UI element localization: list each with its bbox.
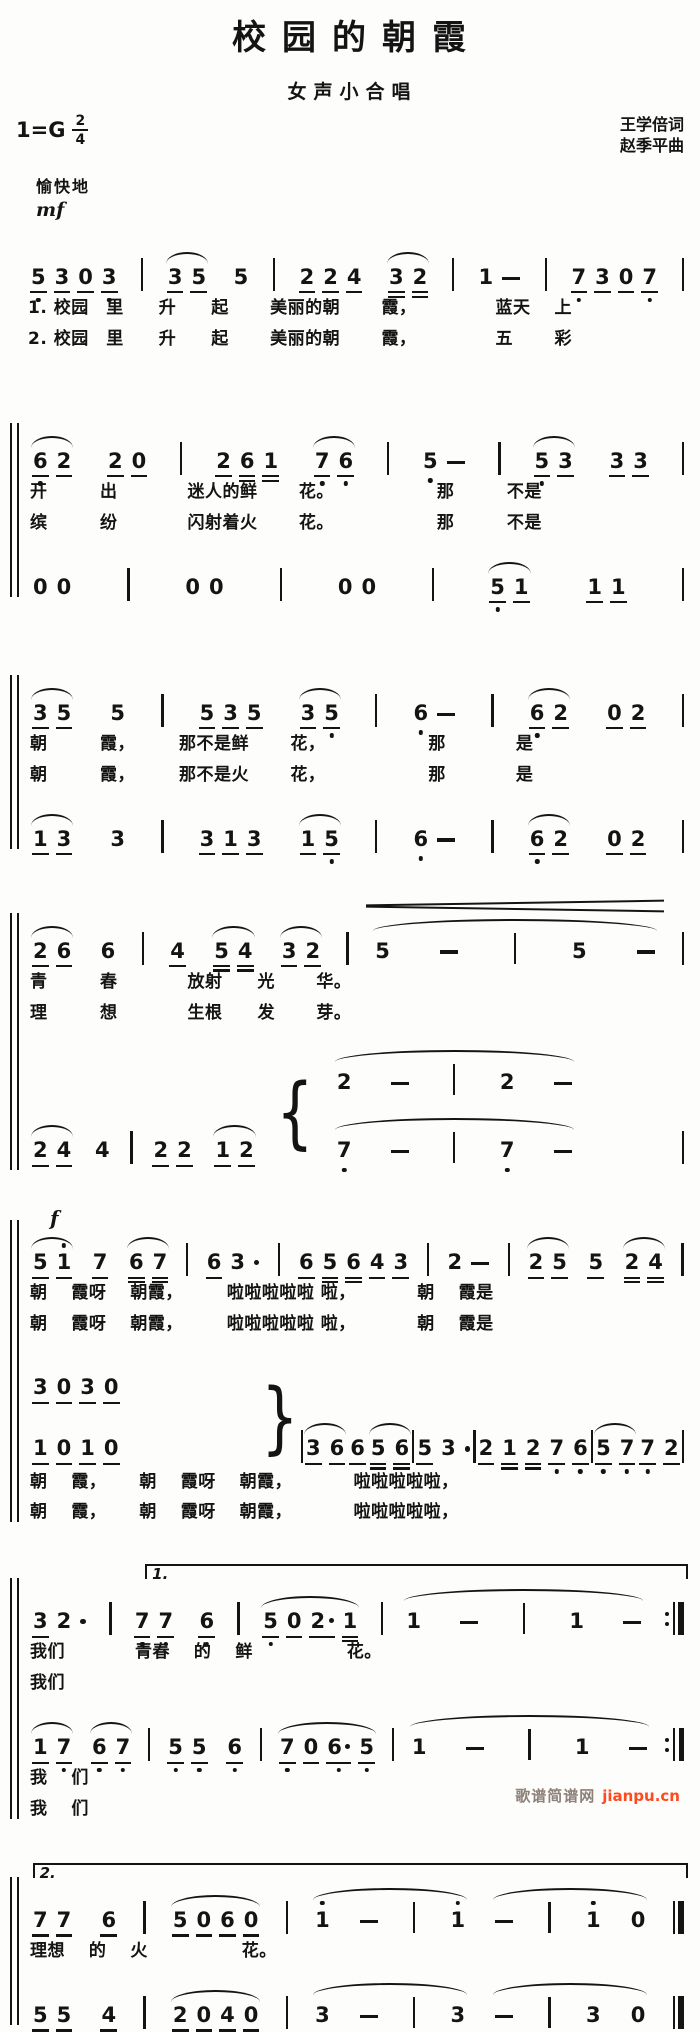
dash-note bbox=[495, 2015, 513, 2018]
system-4: 2664543255青 春 放射 光 华。理 想 生根 发 芽。2442212{… bbox=[10, 899, 688, 1173]
lyrics-line: 开 出 迷人的鲜 花。 那 不是 bbox=[30, 481, 688, 504]
note: 5 bbox=[552, 1251, 567, 1274]
note: 3 bbox=[168, 266, 183, 289]
note-group: 6 bbox=[224, 1736, 245, 1759]
note: 1 bbox=[33, 1437, 48, 1460]
slur-group: 35 bbox=[30, 702, 74, 725]
system-bracket bbox=[10, 1877, 19, 2025]
slur-group: 55 bbox=[372, 933, 658, 963]
barline bbox=[375, 820, 377, 853]
sheet-music-page: 校园的朝霞 女声小合唱 1=G 2 4 王学倍词 赵季平曲 愉快地 mf 530… bbox=[0, 0, 700, 1820]
note: 2 bbox=[305, 940, 320, 963]
note: 6 bbox=[327, 1736, 350, 1759]
note: 3 bbox=[33, 1610, 48, 1633]
note-group: 55 bbox=[30, 2004, 74, 2027]
note-group: 7 bbox=[90, 1251, 111, 1274]
footer-watermark: 歌谱简谱网 jianpu.cn bbox=[515, 1785, 680, 1806]
note: 5 bbox=[214, 940, 229, 963]
note: 2 bbox=[57, 1610, 72, 1633]
note: 7 bbox=[620, 1437, 635, 1460]
note: 3 bbox=[306, 1437, 321, 1460]
slur-group: 36 bbox=[303, 1437, 347, 1460]
note: 0 bbox=[185, 576, 200, 599]
note: 7 bbox=[642, 266, 657, 289]
note: 7 bbox=[500, 1139, 515, 1162]
note-group: 77 bbox=[132, 1610, 176, 1633]
slur-group: 51 bbox=[30, 1251, 74, 1274]
barline bbox=[127, 568, 129, 601]
note-group: 2 bbox=[445, 1251, 493, 1274]
note: 6 bbox=[346, 1251, 361, 1274]
note: 1 bbox=[502, 1437, 517, 1460]
dash-note bbox=[360, 2015, 378, 2018]
note: 7 bbox=[57, 1736, 72, 1759]
slur-group: 32 bbox=[386, 266, 430, 289]
note: 6 bbox=[227, 1736, 242, 1759]
note: 2 bbox=[57, 450, 72, 473]
dynamic-marking-mf: mf bbox=[36, 199, 688, 221]
barline bbox=[161, 820, 163, 853]
slur-group: 62 bbox=[527, 828, 571, 851]
lyrics-line: 缤 纷 闪射着火 花。 那 不是 bbox=[30, 512, 688, 535]
note: 3 bbox=[610, 450, 625, 473]
note-group: 02 bbox=[604, 702, 648, 725]
note: 2 bbox=[310, 1610, 333, 1633]
system-2: 62202617655333开 出 迷人的鲜 花。 那 不是缤 纷 闪射着火 花… bbox=[10, 409, 688, 599]
note-group: 11 bbox=[584, 576, 628, 599]
notes-row: 62202617655333 bbox=[26, 439, 688, 473]
barline bbox=[514, 933, 516, 964]
note: 0 bbox=[607, 702, 622, 725]
note: 5 bbox=[323, 1251, 338, 1274]
note: 0 bbox=[57, 1437, 72, 1460]
note-group: 22 bbox=[150, 1139, 194, 1162]
time-denominator: 4 bbox=[75, 131, 85, 147]
note: 0 bbox=[287, 1610, 302, 1633]
note: 3 bbox=[586, 2004, 601, 2027]
note: 7 bbox=[280, 1736, 295, 1759]
slur-group: 7065 bbox=[277, 1736, 377, 1759]
dash-note bbox=[637, 950, 655, 953]
slur-group: 2040 bbox=[170, 2004, 262, 2027]
tempo-block: 愉快地 mf bbox=[36, 173, 688, 221]
note: 1 bbox=[215, 1139, 230, 1162]
note: 4 bbox=[101, 2004, 116, 2027]
system-6: 1.32776502111我们 青春 的 鲜 花。我们1767556706511… bbox=[10, 1564, 688, 1821]
lyrics-line: 朝 霞， 那不是火 花， 那 是 bbox=[30, 764, 688, 787]
note: 0 bbox=[33, 576, 48, 599]
barline bbox=[148, 1728, 150, 1761]
note: 5 bbox=[324, 702, 339, 725]
divisi-line: 22 bbox=[334, 1064, 664, 1094]
slur-group: 76 bbox=[312, 450, 356, 473]
lyrics-line: 我们 bbox=[30, 1672, 688, 1695]
note: 6 bbox=[338, 450, 353, 473]
barline bbox=[548, 1997, 550, 2028]
low-octave-dot bbox=[495, 607, 499, 611]
note: 2 bbox=[216, 450, 231, 473]
note: 5 bbox=[234, 266, 249, 289]
dash-note bbox=[391, 1150, 409, 1153]
barline bbox=[682, 694, 684, 727]
note: 2 bbox=[625, 1251, 640, 1274]
note: 3 bbox=[247, 828, 262, 851]
note: 0 bbox=[338, 576, 353, 599]
note: 0 bbox=[104, 1437, 119, 1460]
note: 5 bbox=[57, 2004, 72, 2027]
note: 5 bbox=[110, 702, 125, 725]
divisi-stack: 30301010 bbox=[30, 1376, 259, 1460]
note: 2 bbox=[33, 1139, 48, 1162]
system-bracket bbox=[10, 1220, 19, 1522]
note-group: 00 bbox=[182, 576, 226, 599]
note-group: 6 bbox=[411, 828, 459, 851]
note: 3 bbox=[633, 450, 648, 473]
barline bbox=[453, 1064, 455, 1095]
note-group: 4 bbox=[167, 940, 188, 963]
note: 3 bbox=[223, 702, 238, 725]
barline bbox=[682, 568, 684, 601]
barline bbox=[682, 820, 684, 853]
slur-group: 51 bbox=[487, 576, 531, 599]
note: 6 bbox=[207, 1251, 222, 1274]
lyrics-line: 朝 霞， 朝 霞呀 朝霞， 啦啦啦啦啦， bbox=[30, 1471, 688, 1494]
slur-group: 77 bbox=[334, 1132, 575, 1162]
score: 530335522432173071. 校园 里 升 起 美丽的朝 霞， 蓝天 … bbox=[10, 225, 688, 2027]
dynamic-marking-f: f bbox=[50, 1206, 688, 1230]
slur-group: 25 bbox=[526, 1251, 570, 1274]
note: 5 bbox=[200, 702, 215, 725]
note: 5 bbox=[324, 828, 339, 851]
note: 5 bbox=[57, 702, 72, 725]
note: 3 bbox=[282, 940, 297, 963]
barline bbox=[498, 442, 500, 475]
note: 2 bbox=[173, 2004, 188, 2027]
note: 6 bbox=[530, 828, 545, 851]
high-octave-dot bbox=[456, 1901, 460, 1905]
note: 2 bbox=[323, 266, 338, 289]
note: 4 bbox=[95, 1139, 110, 1162]
note: 0 bbox=[607, 828, 622, 851]
barline bbox=[143, 1901, 145, 1934]
dash-note bbox=[554, 1082, 572, 1085]
slur-group: 35 bbox=[298, 702, 342, 725]
note: 6 bbox=[414, 828, 429, 851]
slur-group: 53 bbox=[532, 450, 576, 473]
divisi-line: 77 bbox=[334, 1132, 664, 1162]
note-group: 3 bbox=[107, 828, 128, 851]
barline bbox=[161, 694, 163, 727]
notes-row: 1333131566202 bbox=[26, 817, 688, 851]
notes-row: 32776502111 bbox=[26, 1599, 688, 1633]
note-group: 6 bbox=[411, 702, 459, 725]
slur-group: 62 bbox=[527, 702, 571, 725]
note: 3 bbox=[55, 266, 70, 289]
slur-group: 13 bbox=[30, 828, 74, 851]
time-signature: 2 4 bbox=[72, 114, 88, 147]
barline bbox=[346, 932, 348, 965]
note: 7 bbox=[57, 1909, 72, 1932]
augmentation-dot bbox=[80, 1619, 86, 1625]
dash-note bbox=[391, 1082, 409, 1085]
barline bbox=[286, 1901, 288, 1934]
note: 6 bbox=[330, 1437, 345, 1460]
slur-group: 32 bbox=[279, 940, 323, 963]
barline bbox=[286, 1996, 288, 2029]
barline bbox=[130, 1131, 132, 1164]
note-group: 5 bbox=[420, 450, 468, 473]
barline bbox=[508, 1243, 510, 1276]
slur-group: 62 bbox=[30, 450, 74, 473]
song-subtitle: 女声小合唱 bbox=[17, 77, 688, 104]
low-octave-dot bbox=[505, 1168, 509, 1172]
dash-note bbox=[360, 1920, 378, 1923]
slur-group: 67 bbox=[126, 1251, 170, 1274]
barline bbox=[681, 1243, 683, 1276]
barline bbox=[381, 1602, 383, 1635]
note: 1 bbox=[587, 576, 602, 599]
slur-group: 15 bbox=[298, 828, 342, 851]
note: 1 bbox=[57, 1251, 72, 1274]
note: 1 bbox=[575, 1736, 590, 1759]
barline bbox=[452, 258, 454, 291]
note: 3 bbox=[441, 1437, 456, 1460]
barline bbox=[682, 442, 684, 475]
note-group: 00 bbox=[335, 576, 379, 599]
lyrics-line: 朝 霞， 那不是鲜 花， 那 是 bbox=[30, 733, 688, 756]
note-group: 00 bbox=[30, 576, 74, 599]
barline bbox=[392, 1728, 394, 1761]
high-octave-dot bbox=[320, 1901, 324, 1905]
note: 6 bbox=[350, 1437, 365, 1460]
note-group: 65643 bbox=[296, 1251, 411, 1274]
note: 2 bbox=[108, 450, 123, 473]
notes-row: 1767556706511 bbox=[26, 1725, 688, 1759]
note: 3 bbox=[110, 828, 125, 851]
note: 6 bbox=[33, 450, 48, 473]
note: 5 bbox=[33, 2004, 48, 2027]
low-octave-dot bbox=[535, 859, 539, 863]
barline bbox=[491, 694, 493, 727]
barline bbox=[682, 932, 684, 965]
note: 7 bbox=[153, 1251, 168, 1274]
note: 3 bbox=[595, 266, 610, 289]
note-group: 6 bbox=[196, 1610, 217, 1633]
slur-group: 56 bbox=[368, 1437, 412, 1460]
note: 3 bbox=[33, 702, 48, 725]
note: 1 bbox=[80, 1437, 95, 1460]
system-3: 3555353566202朝 霞， 那不是鲜 花， 那 是朝 霞， 那不是火 花… bbox=[10, 661, 688, 851]
augmentation-dot bbox=[465, 1446, 471, 1452]
note: 1 bbox=[569, 1610, 584, 1633]
barline bbox=[280, 568, 282, 601]
note: 4 bbox=[57, 1139, 72, 1162]
lyrics-line: 理 想 生根 发 芽。 bbox=[30, 1002, 688, 1025]
note: 2 bbox=[413, 266, 428, 289]
note-group: 6 bbox=[98, 940, 119, 963]
note: 7 bbox=[93, 1251, 108, 1274]
note: 6 bbox=[101, 1909, 116, 1932]
barline bbox=[237, 1602, 239, 1635]
barline bbox=[375, 694, 377, 727]
note: 5 bbox=[33, 1251, 48, 1274]
note-group: 63 bbox=[204, 1251, 263, 1274]
volta-bracket: 2. bbox=[33, 1863, 688, 1878]
note: 6 bbox=[414, 702, 429, 725]
barline bbox=[387, 442, 389, 475]
dash-note bbox=[460, 1621, 478, 1624]
note: 5 bbox=[192, 1736, 207, 1759]
note-group: 4 bbox=[92, 1139, 113, 1162]
meta-row: 1=G 2 4 王学倍词 赵季平曲 bbox=[16, 114, 684, 157]
note-group: 5 bbox=[585, 1251, 606, 1274]
note: 5 bbox=[263, 1610, 278, 1633]
final-barline bbox=[673, 1996, 684, 2029]
barline bbox=[278, 1243, 280, 1276]
note: 2 bbox=[177, 1139, 192, 1162]
note: 7 bbox=[337, 1139, 352, 1162]
note-group: 1010 bbox=[30, 1437, 122, 1460]
high-octave-dot bbox=[62, 1243, 66, 1247]
note: 5 bbox=[31, 266, 46, 289]
note: 3 bbox=[451, 2004, 466, 2027]
lyrics-line: 青 春 放射 光 华。 bbox=[30, 971, 688, 994]
key-signature: 1=G 2 4 bbox=[16, 114, 88, 147]
notes-row: 55420403330 bbox=[26, 1993, 688, 2027]
note: 4 bbox=[220, 2004, 235, 2027]
note: 4 bbox=[648, 1251, 663, 1274]
note: 2 bbox=[153, 1139, 168, 1162]
note: 6 bbox=[573, 1437, 588, 1460]
slur-group: 11 bbox=[409, 1729, 650, 1759]
note: 0 bbox=[631, 1909, 646, 1932]
note: 3 bbox=[301, 702, 316, 725]
repeat-barline bbox=[665, 1602, 684, 1635]
system-7: 2.77650601110理想 的 火 花。55420403330 bbox=[10, 1863, 688, 2027]
slur-group: 30 bbox=[492, 1997, 648, 2027]
slur-group: 33 bbox=[312, 1997, 468, 2027]
site-url-link[interactable]: jianpu.cn bbox=[602, 1787, 680, 1805]
high-octave-dot bbox=[591, 1901, 595, 1905]
note: 0 bbox=[104, 1376, 119, 1399]
note: 5 bbox=[359, 1736, 374, 1759]
note: 1 bbox=[412, 1736, 427, 1759]
note: 3 bbox=[389, 266, 404, 289]
note-group: 7307 bbox=[569, 266, 661, 289]
barline bbox=[682, 258, 684, 291]
barline bbox=[545, 258, 547, 291]
system-bracket bbox=[10, 675, 19, 849]
note: 0 bbox=[631, 2004, 646, 2027]
dash-note bbox=[629, 1747, 647, 1750]
barline bbox=[528, 1729, 530, 1760]
note: 2 bbox=[526, 1437, 541, 1460]
barline bbox=[548, 1902, 550, 1933]
dash-note bbox=[554, 1150, 572, 1153]
note: 6 bbox=[220, 1909, 235, 1932]
notes-row: 2664543255 bbox=[26, 929, 688, 963]
note: 5 bbox=[371, 1437, 386, 1460]
final-barline bbox=[673, 1901, 684, 1934]
note: 3 bbox=[315, 2004, 330, 2027]
note: 1 bbox=[406, 1610, 421, 1633]
volta-label: 2. bbox=[40, 1866, 56, 1881]
note: 6 bbox=[240, 450, 255, 473]
lyrics-line: 朝 霞呀 朝霞， 啦啦啦啦啦 啦， 朝 霞是 bbox=[30, 1313, 688, 1336]
dash-note bbox=[437, 838, 455, 841]
note: 5 bbox=[191, 266, 206, 289]
note: 3 bbox=[558, 450, 573, 473]
barline bbox=[260, 1728, 262, 1761]
notes-row: 77650601110 bbox=[26, 1898, 688, 1932]
slur-group: 57 bbox=[593, 1437, 637, 1460]
note: 0 bbox=[197, 2004, 212, 2027]
barline bbox=[682, 1131, 684, 1164]
note: 0 bbox=[244, 2004, 259, 2027]
barline bbox=[143, 1996, 145, 2029]
note-group: 261 bbox=[213, 450, 281, 473]
note: 1 bbox=[315, 1909, 330, 1932]
note: 2 bbox=[239, 1139, 254, 1162]
note-group: 5303 bbox=[28, 266, 120, 289]
note: 0 bbox=[209, 576, 224, 599]
slur-group: 5060 bbox=[170, 1909, 262, 1932]
note: 6 bbox=[199, 1610, 214, 1633]
slur-group: 67 bbox=[89, 1736, 133, 1759]
dash-note bbox=[440, 950, 458, 953]
note: 4 bbox=[238, 940, 253, 963]
lyrics-line: 朝 霞呀 朝霞， 啦啦啦啦啦 啦， 朝 霞是 bbox=[30, 1282, 688, 1305]
note-group: 32 bbox=[30, 1610, 89, 1633]
note: 1 bbox=[301, 828, 316, 851]
divisi-line: 1010 bbox=[30, 1437, 259, 1460]
note: 2 bbox=[553, 702, 568, 725]
note: 3 bbox=[80, 1376, 95, 1399]
note-group: 5 bbox=[107, 702, 128, 725]
note: 3 bbox=[57, 828, 72, 851]
note: 6 bbox=[129, 1251, 144, 1274]
slur-group: 5021 bbox=[260, 1610, 360, 1633]
system-bracket bbox=[10, 423, 19, 597]
note-group: 4 bbox=[98, 2004, 119, 2027]
note-group: 6 bbox=[347, 1437, 368, 1460]
system-1: 530335522432173071. 校园 里 升 起 美丽的朝 霞， 蓝天 … bbox=[10, 225, 688, 351]
note-group: 02 bbox=[604, 828, 648, 851]
note: 7 bbox=[116, 1736, 131, 1759]
slur-group: 54 bbox=[211, 940, 255, 963]
song-title: 校园的朝霞 bbox=[26, 18, 688, 59]
note-group: 21276 bbox=[476, 1437, 591, 1460]
note: 7 bbox=[158, 1610, 173, 1633]
slur-group: 12 bbox=[212, 1139, 256, 1162]
augmentation-dot bbox=[345, 1744, 350, 1749]
note: 0 bbox=[197, 1909, 212, 1932]
note-group: 5 bbox=[231, 266, 252, 289]
note: 5 bbox=[490, 576, 505, 599]
note: 3 bbox=[33, 1376, 48, 1399]
system-5: f517676365643225524朝 霞呀 朝霞， 啦啦啦啦啦 啦， 朝 霞… bbox=[10, 1206, 688, 1524]
volta-label: 1. bbox=[152, 1567, 168, 1582]
note: 5 bbox=[588, 1251, 603, 1274]
dash-note bbox=[471, 1262, 489, 1265]
barline bbox=[273, 258, 275, 291]
note: 7 bbox=[33, 1909, 48, 1932]
note: 4 bbox=[170, 940, 185, 963]
dash-note bbox=[437, 713, 455, 716]
note: 0 bbox=[304, 1736, 319, 1759]
note-group: 33 bbox=[607, 450, 651, 473]
lyrics-line: 朝 霞， 朝 霞呀 朝霞， 啦啦啦啦啦， bbox=[30, 1501, 688, 1524]
